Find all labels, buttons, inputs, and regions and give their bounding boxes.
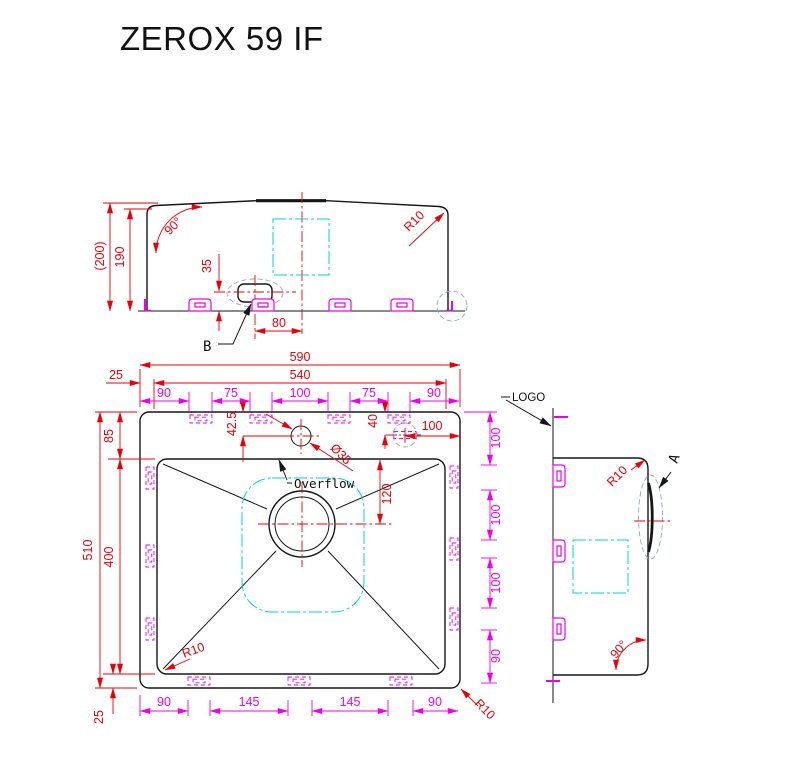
detail-label-b: B <box>203 339 211 355</box>
dim-chain-value: 100 <box>489 573 503 594</box>
dim-faucet-offset: 42.5 <box>225 412 239 436</box>
dim-rim-height: 190 <box>113 247 127 268</box>
radius-leader <box>165 659 190 670</box>
detail-leader-b <box>218 304 251 344</box>
dia-leader1 <box>266 414 292 429</box>
detail-leader-a <box>659 472 671 488</box>
radius-leader <box>631 460 645 470</box>
bottom-dim-chain: 90 145 145 90 <box>140 695 458 716</box>
clip-slot <box>190 415 212 423</box>
clip-slot <box>250 415 272 423</box>
sink-front-outline <box>147 201 448 311</box>
bowl-diagonal <box>163 551 276 669</box>
clip-slot <box>450 608 458 630</box>
dim-overflow-height: 35 <box>200 259 214 273</box>
dim-knockout-inset: 100 <box>422 419 443 433</box>
mounting-clip <box>252 299 274 311</box>
mounting-clip <box>329 299 351 311</box>
right-dim-chain: 100 100 100 90 <box>464 412 503 683</box>
dim-overall-height: (200) <box>93 241 107 270</box>
dim-chain-value: 100 <box>489 428 503 449</box>
dim-overall-depth: 510 <box>81 540 95 561</box>
technical-drawing: ZEROX 59 IF (200) 190 90° <box>0 0 804 765</box>
plan-view: 590 540 25 90 75 100 75 90 510 <box>81 350 503 724</box>
logo-zone-side <box>573 540 628 593</box>
dim-wall-angle: 90° <box>607 638 630 661</box>
mounting-clip <box>553 618 565 640</box>
bowl-diagonal <box>163 464 267 509</box>
dim-chain-value: 90 <box>428 695 442 709</box>
mounting-clip <box>391 299 413 311</box>
dim-edge-offset-bottom: 25 <box>92 710 106 724</box>
front-elevation-view: (200) 190 90° 35 80 R10 B <box>93 192 467 355</box>
dim-inner-width: 540 <box>290 368 311 382</box>
drawing-sheet: ZEROX 59 IF (200) 190 90° <box>0 0 804 765</box>
dim-wall-angle: 90° <box>162 215 185 238</box>
overflow-label: Overflow <box>294 476 355 491</box>
dim-chain-value: 90 <box>157 695 171 709</box>
dim-chain-value: 100 <box>290 386 311 400</box>
dim-chain-value: 100 <box>489 505 503 526</box>
dim-corner-radius: R10 <box>401 208 427 234</box>
clip-slot <box>146 467 154 489</box>
drain-zone-cyan <box>242 478 364 612</box>
drawing-title: ZEROX 59 IF <box>120 20 324 57</box>
clip-slot <box>390 677 412 685</box>
clip-slot <box>450 538 458 560</box>
dim-chain-value: 145 <box>340 695 361 709</box>
detail-label-a: A <box>666 451 684 465</box>
clip-slot <box>146 545 154 567</box>
dim-outer-corner-radius: R10 <box>472 696 498 722</box>
dim-drain-offset: 120 <box>380 484 394 505</box>
dim-bowl-corner-radius: R10 <box>180 640 206 661</box>
mounting-clip <box>553 465 565 487</box>
dim-overflow-offset: 80 <box>272 316 286 330</box>
dim-overall-width: 590 <box>290 350 311 364</box>
mounting-clip <box>189 299 211 311</box>
clip-slot <box>288 677 310 685</box>
overflow-slot-side <box>649 483 653 552</box>
overflow-leader <box>279 460 287 480</box>
logo-zone-front <box>273 219 329 275</box>
clip-slot <box>188 677 210 685</box>
dim-edge-offset-top: 25 <box>109 368 123 382</box>
dim-chain-value: 145 <box>239 695 260 709</box>
clip-slot <box>388 415 410 423</box>
top-dim-chain: 90 75 100 75 90 <box>140 386 459 411</box>
dim-faucet-hole-dia: Ø35 <box>328 441 355 468</box>
clip-slot <box>328 415 350 423</box>
clip-slot <box>450 466 458 488</box>
dim-chain-value: 90 <box>157 386 171 400</box>
dim-rear-ledge: 85 <box>102 429 116 443</box>
mounting-clip <box>553 540 565 562</box>
dim-chain-value: 75 <box>362 386 376 400</box>
dim-bowl-depth: 400 <box>102 547 116 568</box>
side-section-view: 90° R10 A LOGO <box>501 392 684 703</box>
dim-knockout-offset: 40 <box>366 414 380 428</box>
dim-chain-value: 90 <box>427 386 441 400</box>
clip-slot <box>146 618 154 640</box>
dim-chain-value: 75 <box>224 386 238 400</box>
dim-corner-radius: R10 <box>604 463 630 489</box>
bowl-diagonal <box>328 551 439 669</box>
dim-chain-value: 90 <box>489 649 503 663</box>
logo-label: LOGO <box>512 392 545 404</box>
